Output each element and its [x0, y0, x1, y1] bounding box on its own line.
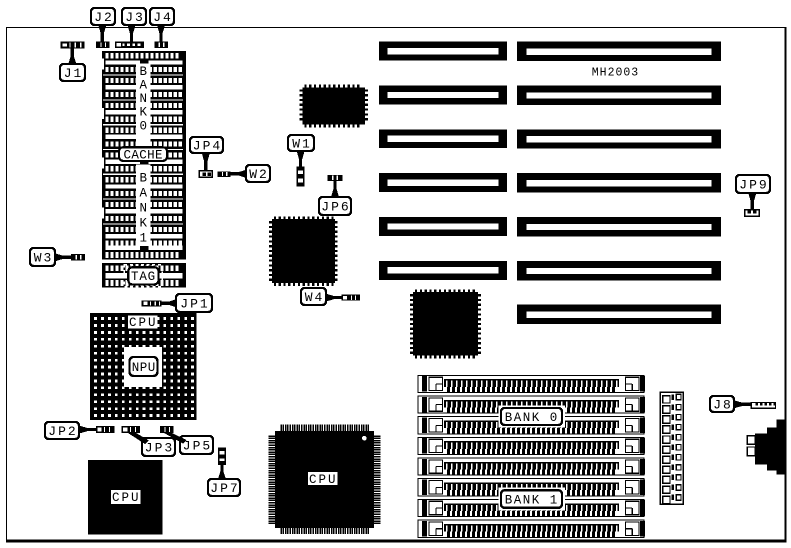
svg-text:BANK 0: BANK 0	[505, 411, 559, 425]
svg-text:NPU: NPU	[132, 361, 156, 375]
svg-text:JP4: JP4	[193, 138, 222, 153]
svg-text:J4: J4	[153, 10, 173, 25]
svg-text:CPU: CPU	[112, 491, 141, 505]
svg-text:CPU: CPU	[129, 316, 158, 330]
svg-text:K: K	[140, 216, 148, 230]
svg-text:JP1: JP1	[180, 296, 209, 311]
svg-text:J8: J8	[713, 397, 733, 412]
svg-text:A: A	[140, 79, 148, 93]
svg-text:JP9: JP9	[739, 177, 768, 192]
svg-text:J3: J3	[125, 10, 145, 25]
svg-text:JP7: JP7	[210, 481, 239, 496]
svg-text:B: B	[140, 172, 148, 186]
svg-text:W1: W1	[292, 136, 312, 151]
svg-text:W4: W4	[305, 290, 325, 305]
svg-text:JP2: JP2	[48, 424, 77, 439]
svg-text:TAG: TAG	[131, 270, 156, 284]
svg-text:0: 0	[140, 119, 148, 133]
svg-text:W2: W2	[249, 167, 269, 182]
svg-text:CACHE: CACHE	[123, 148, 163, 162]
svg-text:J1: J1	[64, 66, 84, 81]
svg-text:CPU: CPU	[309, 473, 338, 487]
svg-text:BANK 1: BANK 1	[505, 493, 559, 507]
svg-text:N: N	[140, 92, 148, 106]
svg-text:A: A	[140, 187, 148, 201]
svg-text:1: 1	[140, 231, 148, 245]
svg-text:JP3: JP3	[145, 440, 174, 455]
svg-text:N: N	[140, 202, 148, 216]
svg-text:W3: W3	[34, 250, 54, 265]
svg-text:K: K	[140, 106, 148, 120]
svg-text:JP6: JP6	[321, 199, 350, 214]
svg-text:B: B	[140, 65, 148, 79]
svg-text:MH2003: MH2003	[592, 66, 639, 79]
svg-text:JP5: JP5	[183, 438, 212, 453]
svg-text:J2: J2	[94, 10, 114, 25]
